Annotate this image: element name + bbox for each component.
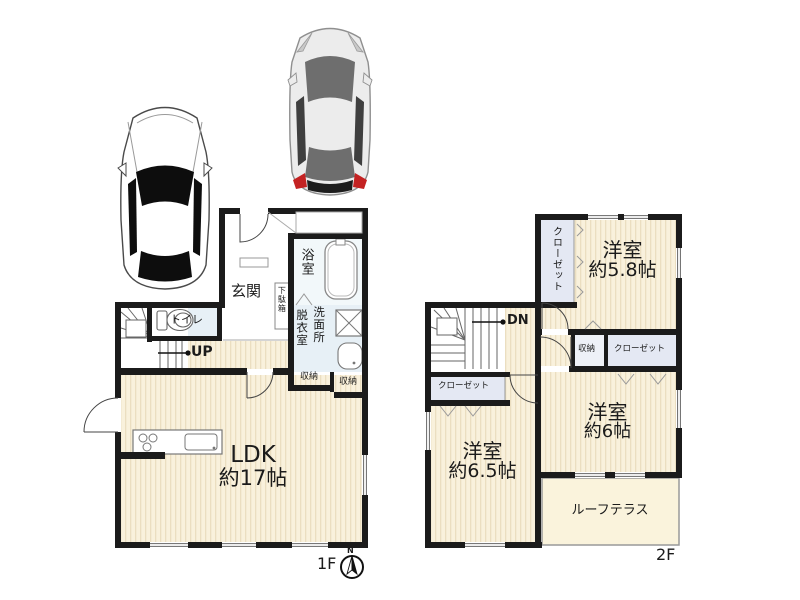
washing-machine-icon xyxy=(336,310,362,336)
closet-w-label: クローゼット xyxy=(438,382,489,391)
room65-label: 洋室 約6.5帖 xyxy=(415,441,550,482)
room58-name: 洋室 xyxy=(555,240,690,261)
dressing-room-label: 脱衣室 xyxy=(296,309,308,347)
compass-north-label: N xyxy=(347,547,354,555)
bathroom-label: 浴室 xyxy=(299,248,313,276)
toilet-label: トイレ xyxy=(170,314,203,326)
compass-icon xyxy=(341,556,363,578)
room58-label: 洋室 約5.8帖 xyxy=(555,240,690,281)
floorplan-page: { "title": "2-story house floor plan wit… xyxy=(0,0,800,600)
ldk-label: LDK 約17帖 xyxy=(178,443,328,489)
storage-2f-label: 収納 xyxy=(578,345,595,354)
stairs-up-label: UP xyxy=(191,345,213,360)
car-icon-silver xyxy=(288,29,372,196)
roof-terrace-label: ルーフテラス xyxy=(560,504,660,518)
room65-name: 洋室 xyxy=(415,441,550,462)
car-icon-white xyxy=(118,108,212,290)
room58-size: 約5.8帖 xyxy=(555,261,690,281)
shoe-cabinet-label: 下駄箱 xyxy=(277,286,285,313)
washroom-label: 洗面所 xyxy=(313,306,325,344)
sink-icon xyxy=(338,343,362,369)
stairs-down-label: DN xyxy=(507,314,529,328)
closet-e-label: クローゼット xyxy=(614,345,665,354)
floor2-label: 2F xyxy=(656,547,675,564)
ldk-size: 約17帖 xyxy=(178,467,328,489)
side-entry-door-arc xyxy=(84,398,118,432)
room6-label: 洋室 約6帖 xyxy=(540,402,675,442)
room6-size: 約6帖 xyxy=(540,423,675,442)
floor1-label: 1F xyxy=(317,556,336,573)
storage-b-label: 収納 xyxy=(339,378,357,387)
entrance-label: 玄関 xyxy=(231,284,261,300)
storage-a-label: 収納 xyxy=(300,373,318,382)
bathtub-icon xyxy=(325,239,357,299)
floorplan-graphics xyxy=(0,0,800,600)
room65-size: 約6.5帖 xyxy=(415,462,550,482)
room6-name: 洋室 xyxy=(540,402,675,423)
ldk-name: LDK xyxy=(178,443,328,467)
